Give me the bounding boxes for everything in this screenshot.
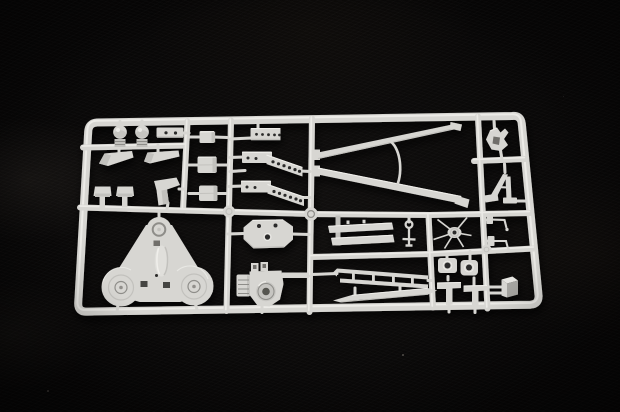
- photo-vignette: [0, 0, 620, 412]
- photo-model-sprue: [0, 0, 620, 412]
- dust-speck: [47, 390, 49, 392]
- dust-speck: [563, 96, 564, 97]
- dust-speck: [402, 354, 404, 356]
